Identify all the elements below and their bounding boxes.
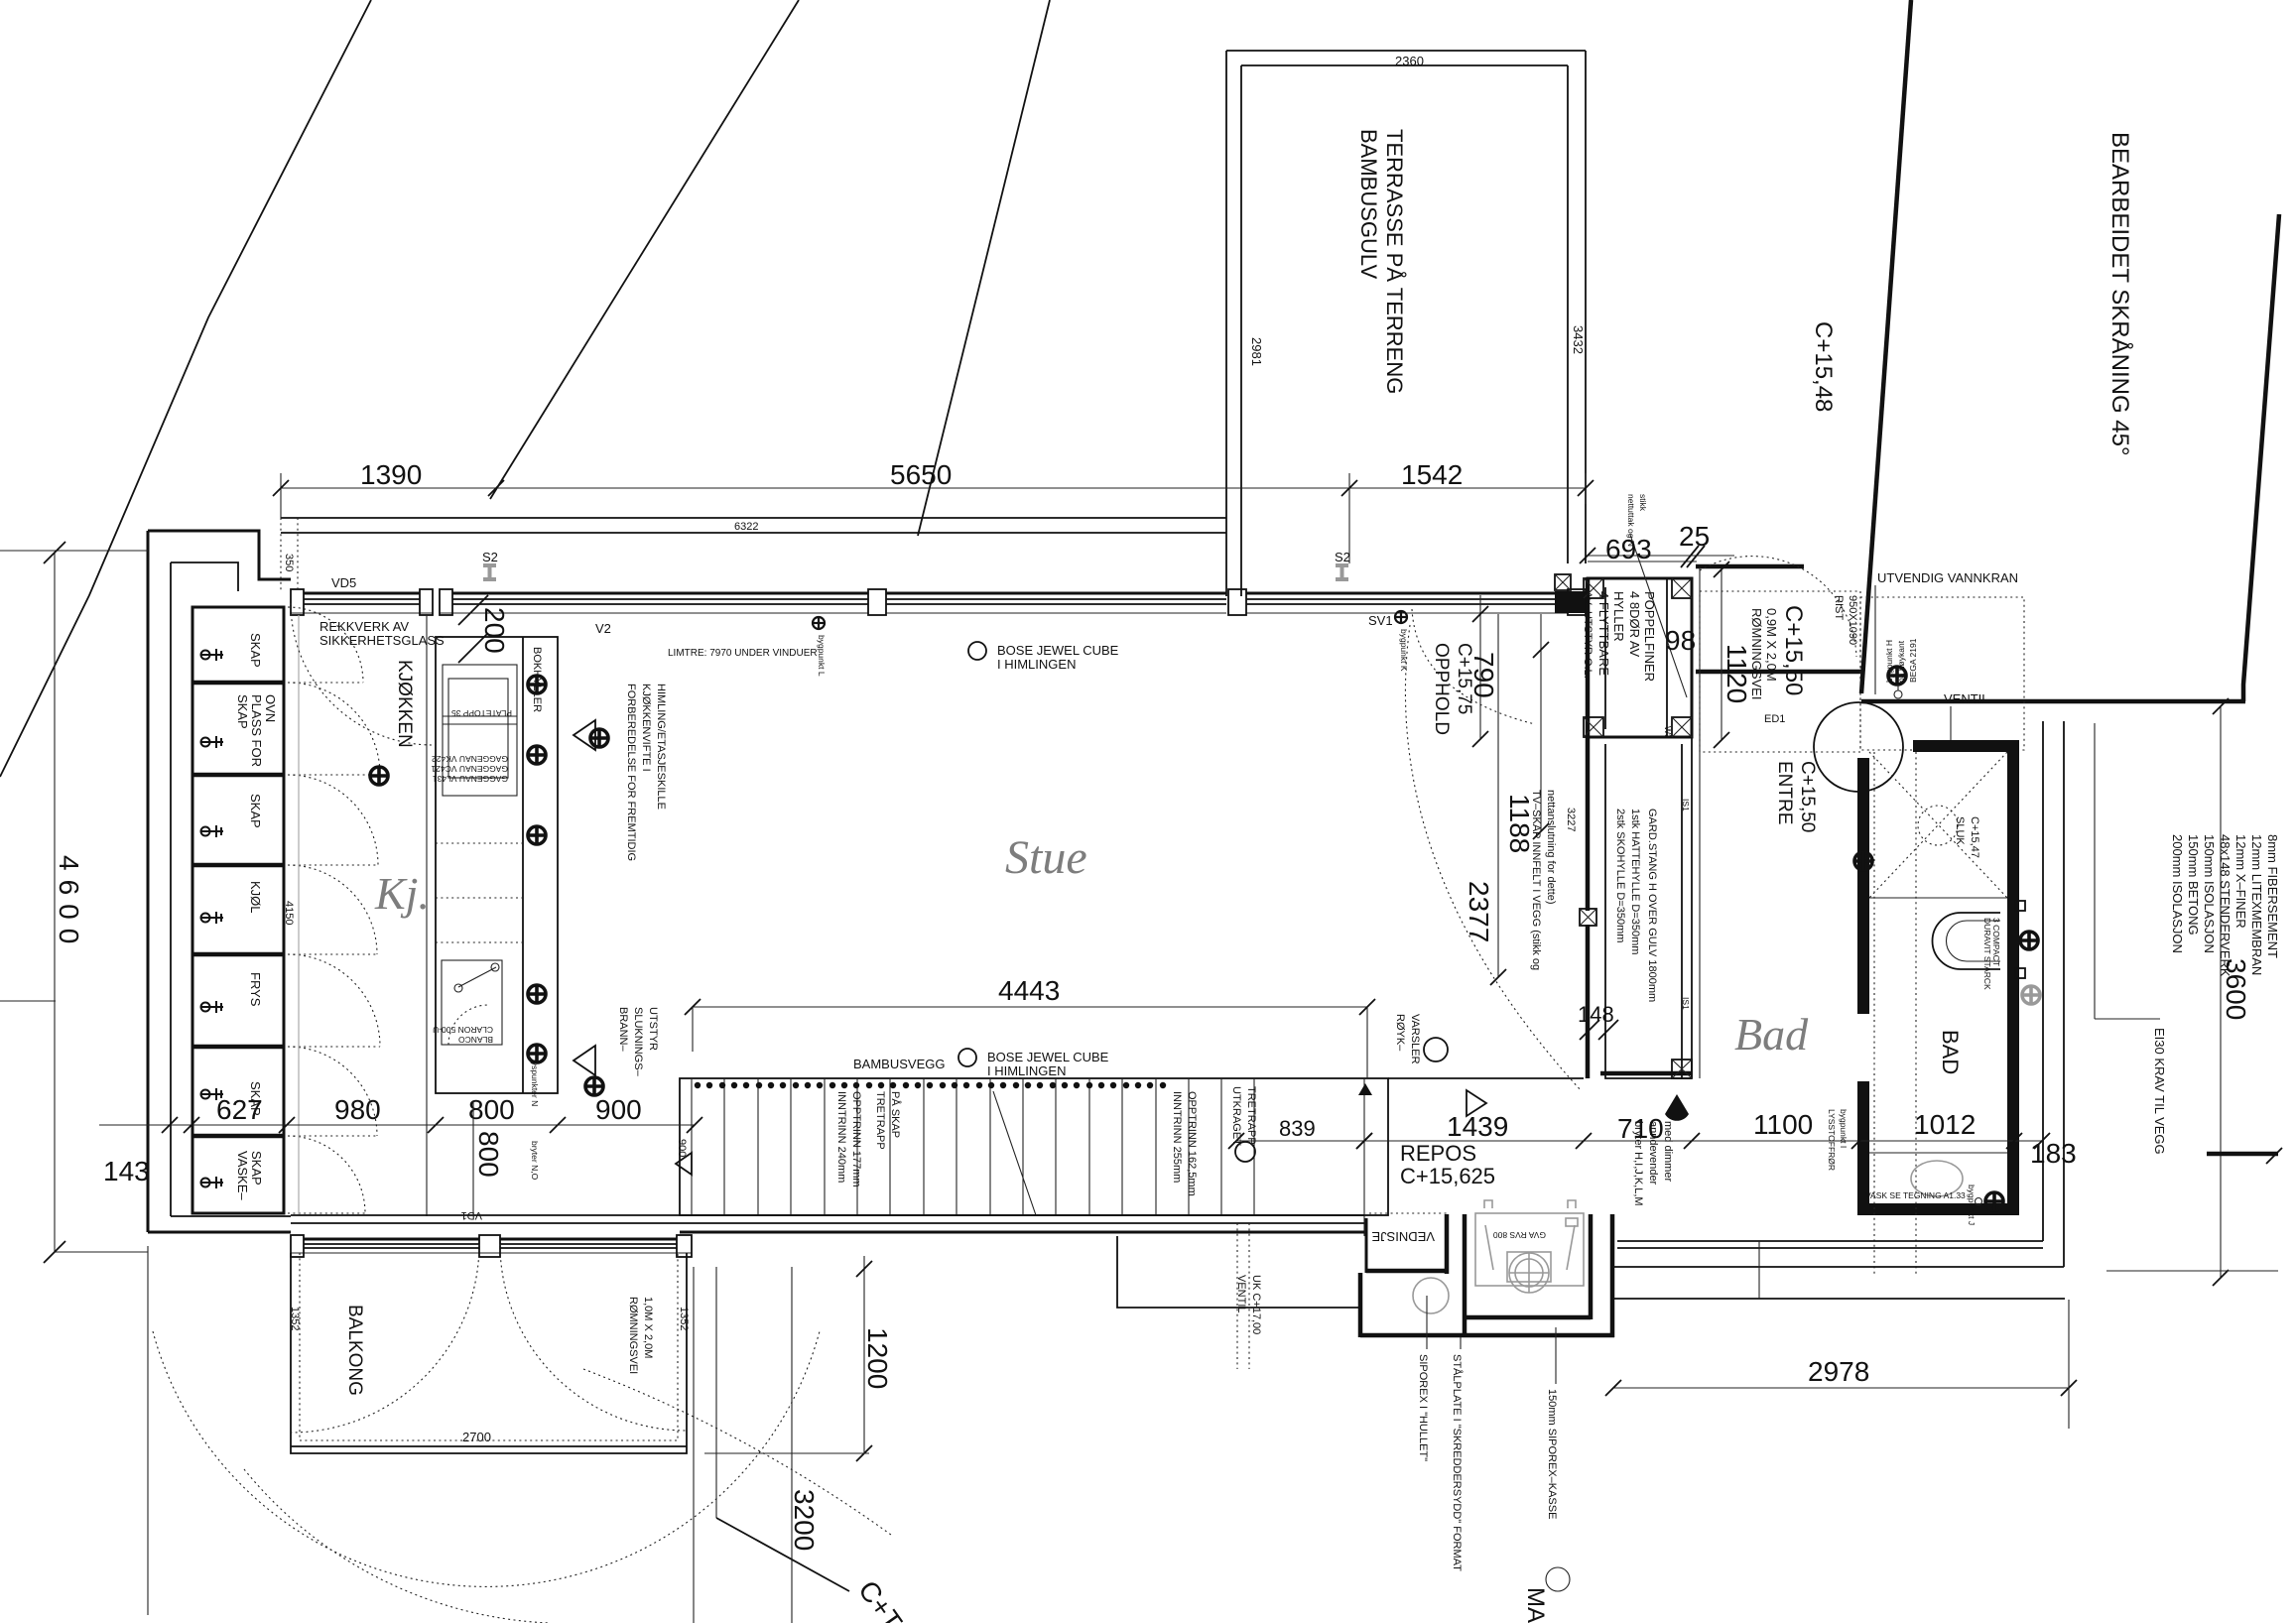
svg-text:OPPTRINN 177mm: OPPTRINN 177mm xyxy=(850,1091,862,1187)
svg-text:200: 200 xyxy=(479,607,510,654)
svg-text:900: 900 xyxy=(595,1094,642,1125)
svg-text:GVA RVS 800: GVA RVS 800 xyxy=(1493,1230,1546,1240)
svg-text:SIPOREX I "HULLET": SIPOREX I "HULLET" xyxy=(1417,1354,1429,1461)
svg-text:GAGGENAU VK422: GAGGENAU VK422 xyxy=(432,754,508,764)
svg-text:2360: 2360 xyxy=(1395,54,1424,68)
svg-text:SLUKNINGS–: SLUKNINGS– xyxy=(632,1007,644,1077)
svg-text:S2: S2 xyxy=(1335,550,1350,564)
svg-text:BEARBEIDET SKRÅNING 45°: BEARBEIDET SKRÅNING 45° xyxy=(2106,132,2134,456)
svg-text:RIST: RIST xyxy=(1833,595,1845,620)
svg-text:BOSE JEWEL CUBE: BOSE JEWEL CUBE xyxy=(987,1050,1109,1064)
svg-text:RØMNINGSVEI: RØMNINGSVEI xyxy=(627,1297,639,1374)
svg-text:SV1: SV1 xyxy=(1368,613,1393,628)
svg-text:2978: 2978 xyxy=(1808,1356,1869,1387)
svg-text:OPPHOLD: OPPHOLD xyxy=(1431,643,1452,735)
svg-text:98: 98 xyxy=(1665,625,1696,656)
svg-text:UK C+17,00: UK C+17,00 xyxy=(1250,1275,1262,1334)
svg-text:KJØKKENVIFTE I: KJØKKENVIFTE I xyxy=(640,684,652,772)
svg-text:LIMTRE: 7970 UNDER VINDUER: LIMTRE: 7970 UNDER VINDUER xyxy=(668,648,818,659)
svg-text:V2: V2 xyxy=(595,621,611,636)
svg-text:183: 183 xyxy=(2030,1138,2077,1169)
svg-text:SKAP: SKAP xyxy=(248,794,263,828)
svg-text:INNTRINN 240mm: INNTRINN 240mm xyxy=(835,1091,847,1183)
svg-text:2700: 2700 xyxy=(462,1430,491,1444)
svg-text:lyspunkter N: lyspunkter N xyxy=(530,1060,540,1106)
svg-text:OPPTRINN 162,5mm: OPPTRINN 162,5mm xyxy=(1186,1091,1198,1196)
svg-text:bryter N,O: bryter N,O xyxy=(530,1141,540,1181)
svg-text:1439: 1439 xyxy=(1447,1111,1508,1142)
svg-text:I HIMLINGEN: I HIMLINGEN xyxy=(997,657,1076,672)
svg-text:SKAP: SKAP xyxy=(248,633,263,668)
svg-text:627: 627 xyxy=(216,1094,263,1125)
svg-text:1012: 1012 xyxy=(1914,1109,1976,1140)
svg-text:790: 790 xyxy=(1468,652,1499,698)
svg-text:900: 900 xyxy=(676,1139,688,1157)
svg-text:VARSLER: VARSLER xyxy=(1409,1014,1421,1064)
svg-text:BAMBUSVEGG: BAMBUSVEGG xyxy=(853,1057,945,1071)
svg-text:MAG: MAG xyxy=(1522,1587,1549,1623)
svg-text:IS1: IS1 xyxy=(1681,997,1691,1010)
svg-text:3432: 3432 xyxy=(1571,325,1586,354)
svg-text:1stk HATTEHYLLE D=350mm: 1stk HATTEHYLLE D=350mm xyxy=(1629,809,1641,954)
svg-text:ED1: ED1 xyxy=(1764,713,1785,725)
svg-text:bygpunkt K: bygpunkt K xyxy=(1399,629,1409,672)
svg-text:RØMNINGSVEI: RØMNINGSVEI xyxy=(1749,608,1764,699)
svg-text:Bad: Bad xyxy=(1734,1009,1809,1060)
svg-text:bygpunkt J: bygpunkt J xyxy=(1967,1185,1977,1225)
svg-text:1100: 1100 xyxy=(1753,1109,1813,1140)
svg-text:710: 710 xyxy=(1617,1113,1664,1144)
svg-text:VD1: VD1 xyxy=(461,1209,482,1221)
svg-text:4 8DØR AV: 4 8DØR AV xyxy=(1627,591,1642,658)
svg-text:INNTRINN 255mm: INNTRINN 255mm xyxy=(1171,1091,1183,1183)
svg-text:6322: 6322 xyxy=(734,521,758,533)
svg-text:150mm SIPOREX–KASSE: 150mm SIPOREX–KASSE xyxy=(1546,1389,1558,1519)
svg-text:1200: 1200 xyxy=(862,1327,893,1389)
svg-text:bygpunkt L: bygpunkt L xyxy=(817,635,827,677)
svg-text:800: 800 xyxy=(473,1131,504,1178)
svg-text:3200: 3200 xyxy=(789,1489,820,1551)
svg-text:RØYK–: RØYK– xyxy=(1394,1014,1406,1052)
svg-text:839: 839 xyxy=(1279,1116,1316,1141)
svg-text:stikk: stikk xyxy=(1638,494,1648,512)
svg-text:5650: 5650 xyxy=(890,459,952,490)
svg-text:SLUK: SLUK xyxy=(1954,816,1966,845)
svg-text:4150: 4150 xyxy=(283,901,295,925)
svg-text:PÅ SKAP: PÅ SKAP xyxy=(889,1091,902,1138)
svg-text:bygpunkt I: bygpunkt I xyxy=(1839,1109,1849,1148)
svg-text:1,0M X 2,0M: 1,0M X 2,0M xyxy=(642,1297,654,1358)
svg-text:BOSE JEWEL CUBE: BOSE JEWEL CUBE xyxy=(997,643,1119,658)
svg-text:SKAP: SKAP xyxy=(249,1151,264,1186)
svg-text:Stue: Stue xyxy=(1005,831,1087,884)
svg-text:1352: 1352 xyxy=(678,1307,690,1330)
svg-text:GAGGENAU VC421: GAGGENAU VC421 xyxy=(431,764,508,774)
svg-text:980: 980 xyxy=(334,1094,381,1125)
svg-text:BRANN–: BRANN– xyxy=(617,1007,629,1053)
svg-text:FRYS: FRYS xyxy=(248,972,263,1007)
svg-text:PLASS FOR: PLASS FOR xyxy=(249,694,264,767)
svg-text:TV–SKAP INNFELT I VEGG (st: TV–SKAP INNFELT I VEGG (stikk og xyxy=(1530,790,1542,970)
svg-text:FORBEREDELSE FOR FREMTIDIG: FORBEREDELSE FOR FREMTIDIG xyxy=(625,684,637,861)
svg-text:EI30 KRAV TIL VEGG: EI30 KRAV TIL VEGG xyxy=(2152,1028,2167,1155)
svg-text:350: 350 xyxy=(283,554,295,571)
svg-text:4 FLYTTBARE: 4 FLYTTBARE xyxy=(1596,591,1611,676)
svg-text:PLATETOPP 35: PLATETOPP 35 xyxy=(451,708,512,718)
svg-text:143: 143 xyxy=(103,1156,150,1186)
svg-text:IS1: IS1 xyxy=(1681,799,1691,811)
svg-text:C+15,625: C+15,625 xyxy=(1400,1164,1495,1188)
svg-text:0,9M X 2,0M: 0,9M X 2,0M xyxy=(1764,608,1779,682)
svg-text:SIKKERHETSGLASS: SIKKERHETSGLASS xyxy=(319,633,445,648)
svg-text:1542: 1542 xyxy=(1401,459,1463,490)
svg-text:12mm X–FINER: 12mm X–FINER xyxy=(2233,834,2248,929)
svg-text:3600: 3600 xyxy=(2221,958,2251,1020)
svg-text:200mm ISOLASJON: 200mm ISOLASJON xyxy=(2170,834,2185,953)
svg-text:C+15,47: C+15,47 xyxy=(1969,816,1980,858)
svg-text:3 COMPACT: 3 COMPACT xyxy=(1991,918,2001,966)
svg-text:VENTIL: VENTIL xyxy=(1944,691,1989,706)
svg-text:S2: S2 xyxy=(482,550,498,564)
svg-text:4600: 4600 xyxy=(54,855,84,952)
svg-text:8mm FIBERSEMENT: 8mm FIBERSEMENT xyxy=(2265,834,2280,958)
svg-text:TERRASSE PÅ TERRENG: TERRASSE PÅ TERRENG xyxy=(1382,129,1407,394)
svg-text:VASKE–: VASKE– xyxy=(235,1151,250,1200)
svg-text:3227: 3227 xyxy=(1565,808,1577,831)
svg-text:DURAVIT STARCK: DURAVIT STARCK xyxy=(1982,918,1992,990)
svg-text:I HIMLINGEN: I HIMLINGEN xyxy=(987,1063,1066,1078)
svg-text:BAMBUSGULV: BAMBUSGULV xyxy=(1356,129,1381,280)
svg-text:2981: 2981 xyxy=(1249,337,1264,366)
svg-text:HIMLING/ETASJESKILLE: HIMLING/ETASJESKILLE xyxy=(655,684,667,810)
svg-text:GAGGENAU VL431: GAGGENAU VL431 xyxy=(433,774,508,784)
svg-text:C+15,50: C+15,50 xyxy=(1780,605,1807,695)
svg-text:4443: 4443 xyxy=(998,975,1060,1006)
svg-text:Kj.: Kj. xyxy=(374,868,430,919)
svg-text:REKKVERK AV: REKKVERK AV xyxy=(319,619,409,634)
svg-text:1390: 1390 xyxy=(360,459,422,490)
svg-text:2377: 2377 xyxy=(1464,881,1494,942)
svg-text:VEDNISJE: VEDNISJE xyxy=(1371,1229,1435,1244)
svg-text:2stk SKOHYLLE D=350mm: 2stk SKOHYLLE D=350mm xyxy=(1614,809,1626,942)
svg-text:800: 800 xyxy=(468,1094,515,1125)
svg-text:C+15,50: C+15,50 xyxy=(1797,761,1818,832)
svg-text:UTVENDIG VANNKRAN: UTVENDIG VANNKRAN xyxy=(1877,570,2018,585)
svg-text:GARD.STANG H OVER GULV 180: GARD.STANG H OVER GULV 1800mm xyxy=(1646,809,1658,1002)
svg-text:1120: 1120 xyxy=(1722,644,1752,703)
svg-text:BEGA 2191: BEGA 2191 xyxy=(1908,638,1918,683)
svg-text:OVN: OVN xyxy=(263,694,278,722)
svg-text:C+15,48: C+15,48 xyxy=(1810,321,1837,412)
svg-text:48x148 STENDERVERK: 48x148 STENDERVERK xyxy=(2218,834,2232,977)
svg-text:693: 693 xyxy=(1605,534,1652,564)
svg-text:TRETRAPP: TRETRAPP xyxy=(874,1091,886,1150)
svg-text:150mm ISOLASJON: 150mm ISOLASJON xyxy=(2202,834,2217,953)
svg-text:BAD: BAD xyxy=(1938,1030,1963,1074)
svg-text:150mm BETONG: 150mm BETONG xyxy=(2186,834,2201,936)
svg-text:REPOS: REPOS xyxy=(1400,1141,1476,1166)
svg-text:nettanslutning for dette): nettanslutning for dette) xyxy=(1545,790,1557,905)
svg-text:med dimmer: med dimmer xyxy=(1662,1121,1674,1182)
svg-text:BLANCO: BLANCO xyxy=(458,1035,493,1045)
svg-text:VENTIL: VENTIL xyxy=(1235,1275,1247,1313)
svg-text:KJØL: KJØL xyxy=(248,881,263,914)
svg-text:AV–UTSTYR O.L.: AV–UTSTYR O.L. xyxy=(1582,591,1594,679)
svg-text:SKAP: SKAP xyxy=(235,694,250,729)
svg-text:12mm LITEXMEMBRAN: 12mm LITEXMEMBRAN xyxy=(2249,834,2264,975)
svg-text:KJØKKEN: KJØKKEN xyxy=(394,660,415,748)
svg-text:W3: W3 xyxy=(1663,726,1673,739)
svg-text:1352: 1352 xyxy=(289,1307,301,1330)
svg-text:ENTRE: ENTRE xyxy=(1774,761,1795,824)
svg-text:VD5: VD5 xyxy=(331,575,356,590)
svg-text:HYLLER: HYLLER xyxy=(1611,591,1626,642)
svg-text:LYSSTOFFRØR: LYSSTOFFRØR xyxy=(1827,1109,1837,1171)
svg-text:BALKONG: BALKONG xyxy=(344,1305,365,1396)
svg-text:STÅLPLATE I "SKREDDERSYDD": STÅLPLATE I "SKREDDERSYDD" FORMAT xyxy=(1451,1354,1464,1571)
svg-text:TRETRAPP: TRETRAPP xyxy=(1245,1086,1257,1145)
svg-text:UTSTYR: UTSTYR xyxy=(647,1007,659,1051)
svg-text:CLARON 500-U: CLARON 500-U xyxy=(433,1025,493,1035)
svg-text:25: 25 xyxy=(1679,521,1710,552)
